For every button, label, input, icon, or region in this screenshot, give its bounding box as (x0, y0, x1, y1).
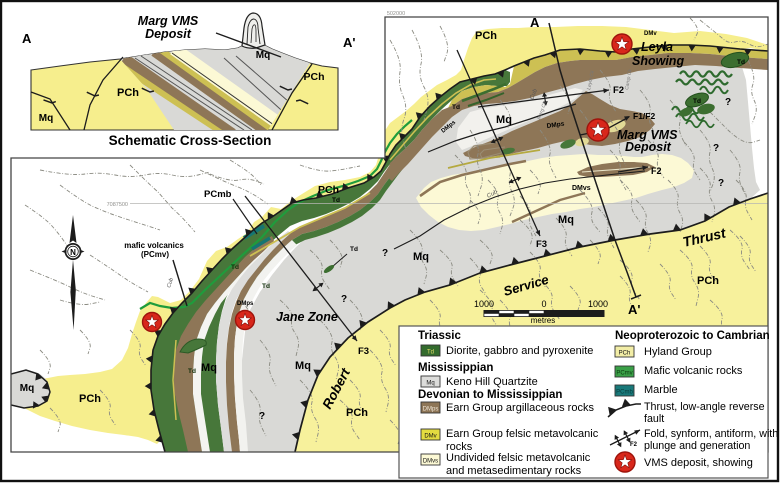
svg-text:Earn Group felsic metavolcanic: Earn Group felsic metavolcanic (446, 428, 599, 440)
svg-text:DMv: DMv (644, 31, 657, 37)
svg-text:Jane Zone: Jane Zone (276, 310, 338, 324)
svg-text:Mq: Mq (496, 114, 512, 126)
svg-text:DMps: DMps (237, 301, 254, 307)
svg-text:plunge and generation: plunge and generation (644, 440, 750, 452)
svg-text:Td: Td (188, 368, 196, 375)
svg-text:Mafic volcanic rocks: Mafic volcanic rocks (644, 365, 743, 377)
svg-text:PCh: PCh (475, 30, 497, 42)
svg-text:Td: Td (693, 98, 701, 105)
svg-text:Mq: Mq (413, 251, 429, 263)
svg-text:Deposit: Deposit (625, 140, 672, 154)
svg-text:Td: Td (231, 264, 239, 271)
svg-text:Schematic Cross-Section: Schematic Cross-Section (109, 133, 272, 148)
svg-text:F2: F2 (651, 166, 662, 176)
svg-text:Td: Td (452, 104, 460, 111)
svg-text:Td: Td (737, 59, 745, 66)
svg-text:?: ? (725, 97, 731, 108)
svg-text:F2: F2 (613, 85, 624, 96)
svg-text:metres: metres (531, 316, 555, 325)
svg-text:Diorite, gabbro and pyroxenite: Diorite, gabbro and pyroxenite (446, 345, 593, 357)
svg-text:PCh: PCh (697, 275, 719, 287)
svg-text:Deposit: Deposit (145, 27, 192, 41)
svg-text:PCmv: PCmv (616, 371, 632, 377)
svg-text:Td: Td (350, 246, 358, 253)
svg-text:Mq: Mq (20, 383, 34, 394)
svg-text:A: A (22, 31, 32, 46)
svg-text:Mq: Mq (426, 381, 434, 387)
svg-text:Hyland Group: Hyland Group (644, 346, 712, 358)
svg-text:mafic volcanics: mafic volcanics (124, 241, 184, 250)
svg-text:N: N (70, 248, 76, 257)
svg-text:Mq: Mq (295, 360, 311, 372)
svg-text:?: ? (259, 411, 265, 422)
svg-text:PCmb: PCmb (616, 390, 633, 396)
svg-text:0: 0 (541, 299, 546, 309)
svg-text:(PCmv): (PCmv) (141, 250, 169, 259)
svg-text:DMv: DMv (424, 434, 436, 440)
svg-text:Showing: Showing (632, 54, 684, 68)
svg-text:Marble: Marble (644, 384, 678, 396)
svg-text:PCh: PCh (304, 71, 325, 83)
svg-text:PCmb: PCmb (204, 189, 232, 200)
svg-text:PCh: PCh (619, 351, 631, 357)
svg-text:Thrust, low-angle reverse: Thrust, low-angle reverse (644, 401, 765, 413)
svg-text:Keno Hill Quartzite: Keno Hill Quartzite (446, 376, 538, 388)
svg-text:F3: F3 (358, 346, 369, 357)
svg-text:Marg VMS: Marg VMS (138, 14, 199, 28)
svg-text:?: ? (718, 178, 724, 189)
svg-text:Neoproterozoic to Cambrian: Neoproterozoic to Cambrian (615, 330, 770, 342)
svg-text:?: ? (382, 248, 388, 259)
svg-text:Mississippian: Mississippian (418, 362, 493, 374)
svg-text:DMvs: DMvs (572, 185, 591, 192)
svg-text:F3: F3 (536, 239, 547, 250)
svg-text:A': A' (628, 302, 640, 317)
svg-text:PCh: PCh (117, 87, 139, 99)
svg-text:Triassic: Triassic (418, 330, 461, 342)
svg-text:Devonian to Mississippian: Devonian to Mississippian (418, 389, 562, 401)
svg-text:1000: 1000 (588, 299, 608, 309)
svg-text:F1/F2: F1/F2 (633, 111, 655, 121)
svg-text:DMps: DMps (423, 407, 439, 413)
svg-text:Mq: Mq (558, 214, 574, 226)
svg-text:Undivided felsic metavolcanic: Undivided felsic metavolcanic (446, 452, 591, 464)
svg-text:PCh: PCh (318, 184, 339, 196)
svg-text:502000: 502000 (387, 11, 405, 17)
svg-text:fault: fault (644, 413, 664, 425)
svg-text:Td: Td (427, 350, 434, 356)
svg-text:PCh: PCh (346, 407, 368, 419)
svg-text:Earn Group argillaceous rocks: Earn Group argillaceous rocks (446, 402, 594, 414)
svg-text:DMvs: DMvs (423, 459, 438, 465)
svg-text:F2: F2 (630, 442, 638, 448)
svg-text:PCh: PCh (79, 393, 101, 405)
svg-text:Fold, synform, antiform, with: Fold, synform, antiform, with (644, 428, 778, 440)
svg-text:Mq: Mq (39, 113, 53, 124)
svg-text:7087500: 7087500 (107, 202, 128, 208)
svg-text:VMS deposit, showing: VMS deposit, showing (644, 457, 753, 469)
svg-text:Mq: Mq (201, 362, 217, 374)
svg-text:A': A' (343, 35, 355, 50)
svg-text:Leyla: Leyla (641, 40, 673, 54)
svg-text:Td: Td (262, 283, 270, 290)
svg-text:and metasedimentary rocks: and metasedimentary rocks (446, 465, 582, 477)
svg-text:?: ? (341, 294, 347, 305)
svg-text:1000: 1000 (474, 299, 494, 309)
svg-text:Td: Td (332, 197, 340, 204)
svg-text:?: ? (713, 143, 719, 154)
